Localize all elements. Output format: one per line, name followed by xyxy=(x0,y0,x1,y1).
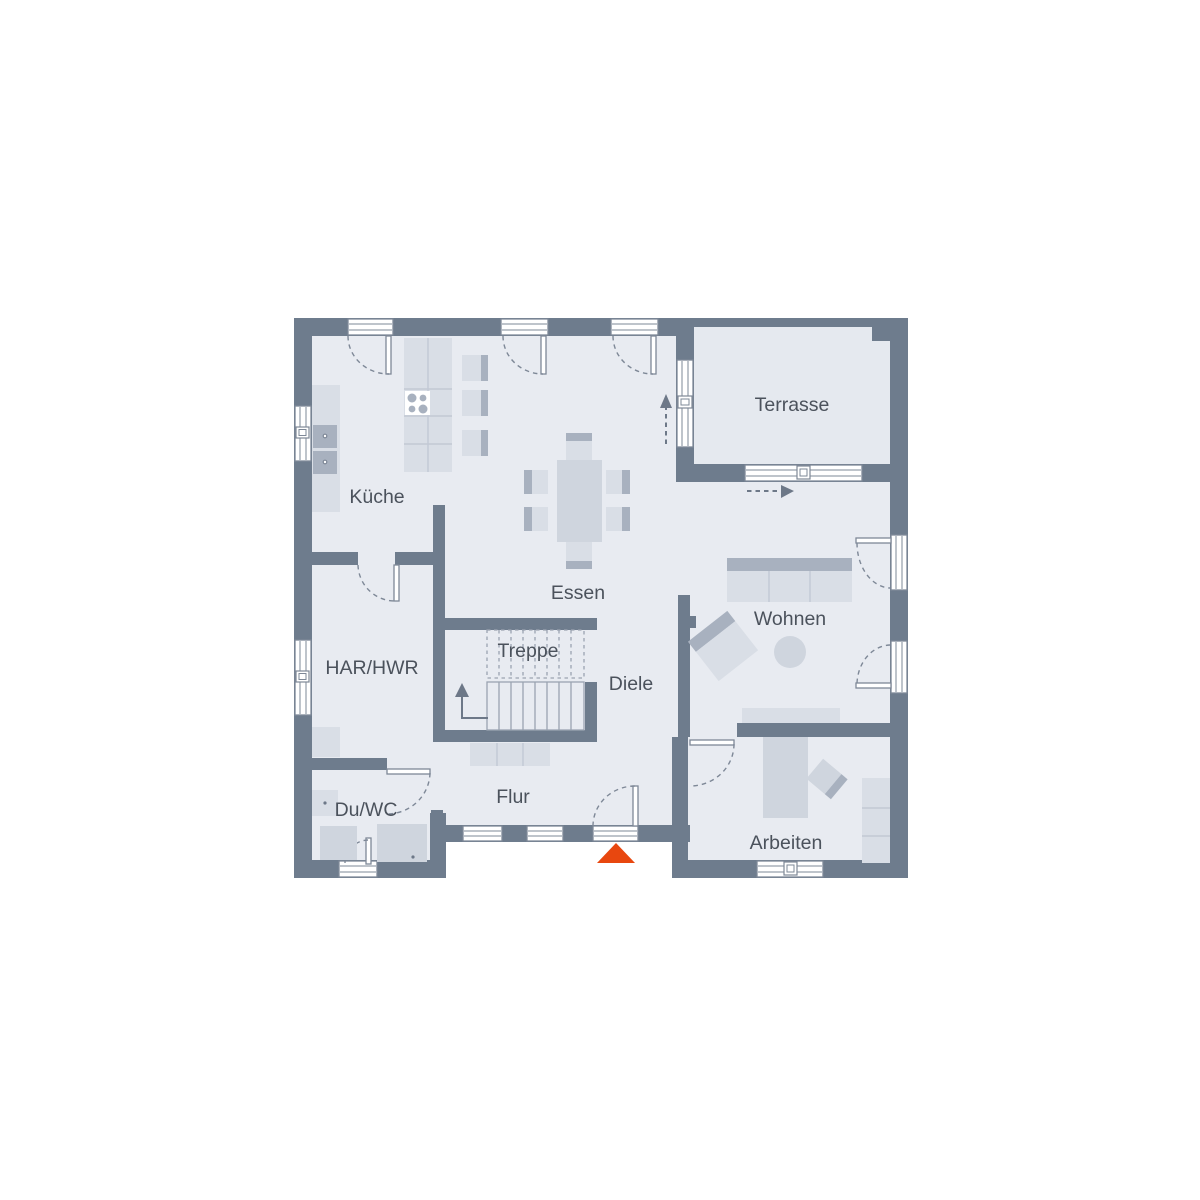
wall-wohnen-stub xyxy=(690,616,696,628)
desk xyxy=(763,737,808,818)
wall-exterior-right xyxy=(890,318,908,878)
wall-terrace-parapet-top xyxy=(694,318,908,327)
label-du-wc: Du/WC xyxy=(335,799,398,821)
wall-exterior-left xyxy=(294,318,312,878)
shelf xyxy=(862,778,890,863)
window-flur-2 xyxy=(527,826,563,841)
label-diele: Diele xyxy=(609,673,653,695)
floor-plan: Küche Essen Terrasse Wohnen HAR/HWR Trep… xyxy=(0,0,1200,1200)
flur-sideboard xyxy=(470,743,550,766)
wall-har-duwc xyxy=(312,758,387,770)
window-terrasse-left xyxy=(677,360,693,447)
door-leaf xyxy=(366,838,371,864)
washing-machine-icon xyxy=(312,727,340,757)
wall-wohnen-arbeiten-b xyxy=(737,723,890,737)
wall-wohnen-left xyxy=(678,595,690,737)
floor-passage xyxy=(676,482,690,595)
window-terrasse-bottom xyxy=(745,465,862,481)
window-kueche-left xyxy=(295,406,311,461)
entrance-marker-icon xyxy=(597,843,635,863)
door-leaf xyxy=(633,786,638,826)
wall-kueche-har-a xyxy=(312,552,358,565)
door-leaf xyxy=(541,336,546,374)
label-essen: Essen xyxy=(551,582,605,604)
window-arbeiten-bottom xyxy=(757,861,823,877)
sofa xyxy=(727,558,852,602)
wall-terrace-corner-post xyxy=(872,327,890,341)
wall-stair-bottom xyxy=(433,730,597,742)
wall-stair-top xyxy=(440,618,597,630)
wall-wohnen-arbeiten-a xyxy=(678,723,688,737)
floor-plan-drawing: Küche Essen Terrasse Wohnen HAR/HWR Trep… xyxy=(0,0,1200,1200)
dining-table xyxy=(557,460,602,542)
door-leaf xyxy=(856,683,891,688)
label-terrasse: Terrasse xyxy=(755,394,830,416)
label-treppe: Treppe xyxy=(497,640,558,662)
label-wohnen: Wohnen xyxy=(754,608,826,630)
wall-stair-right xyxy=(585,682,597,742)
window-flur-1 xyxy=(463,826,502,841)
door-leaf xyxy=(856,538,891,543)
wohnen-sideboard xyxy=(742,708,840,723)
wall-arbeiten-left xyxy=(672,737,688,878)
shower-icon xyxy=(320,826,357,860)
label-kueche: Küche xyxy=(349,486,404,508)
wall-duwc-stub xyxy=(431,810,443,827)
wc-icon xyxy=(377,824,427,862)
label-arbeiten: Arbeiten xyxy=(750,832,823,854)
coffee-table xyxy=(774,636,806,668)
window-har-left xyxy=(295,640,311,715)
door-leaf xyxy=(386,336,391,374)
door-leaf xyxy=(651,336,656,374)
label-flur: Flur xyxy=(496,786,530,808)
kitchen-counter xyxy=(312,385,340,512)
label-har-hwr: HAR/HWR xyxy=(325,657,418,679)
kitchen-island xyxy=(404,338,452,472)
bar-stools xyxy=(462,355,488,456)
